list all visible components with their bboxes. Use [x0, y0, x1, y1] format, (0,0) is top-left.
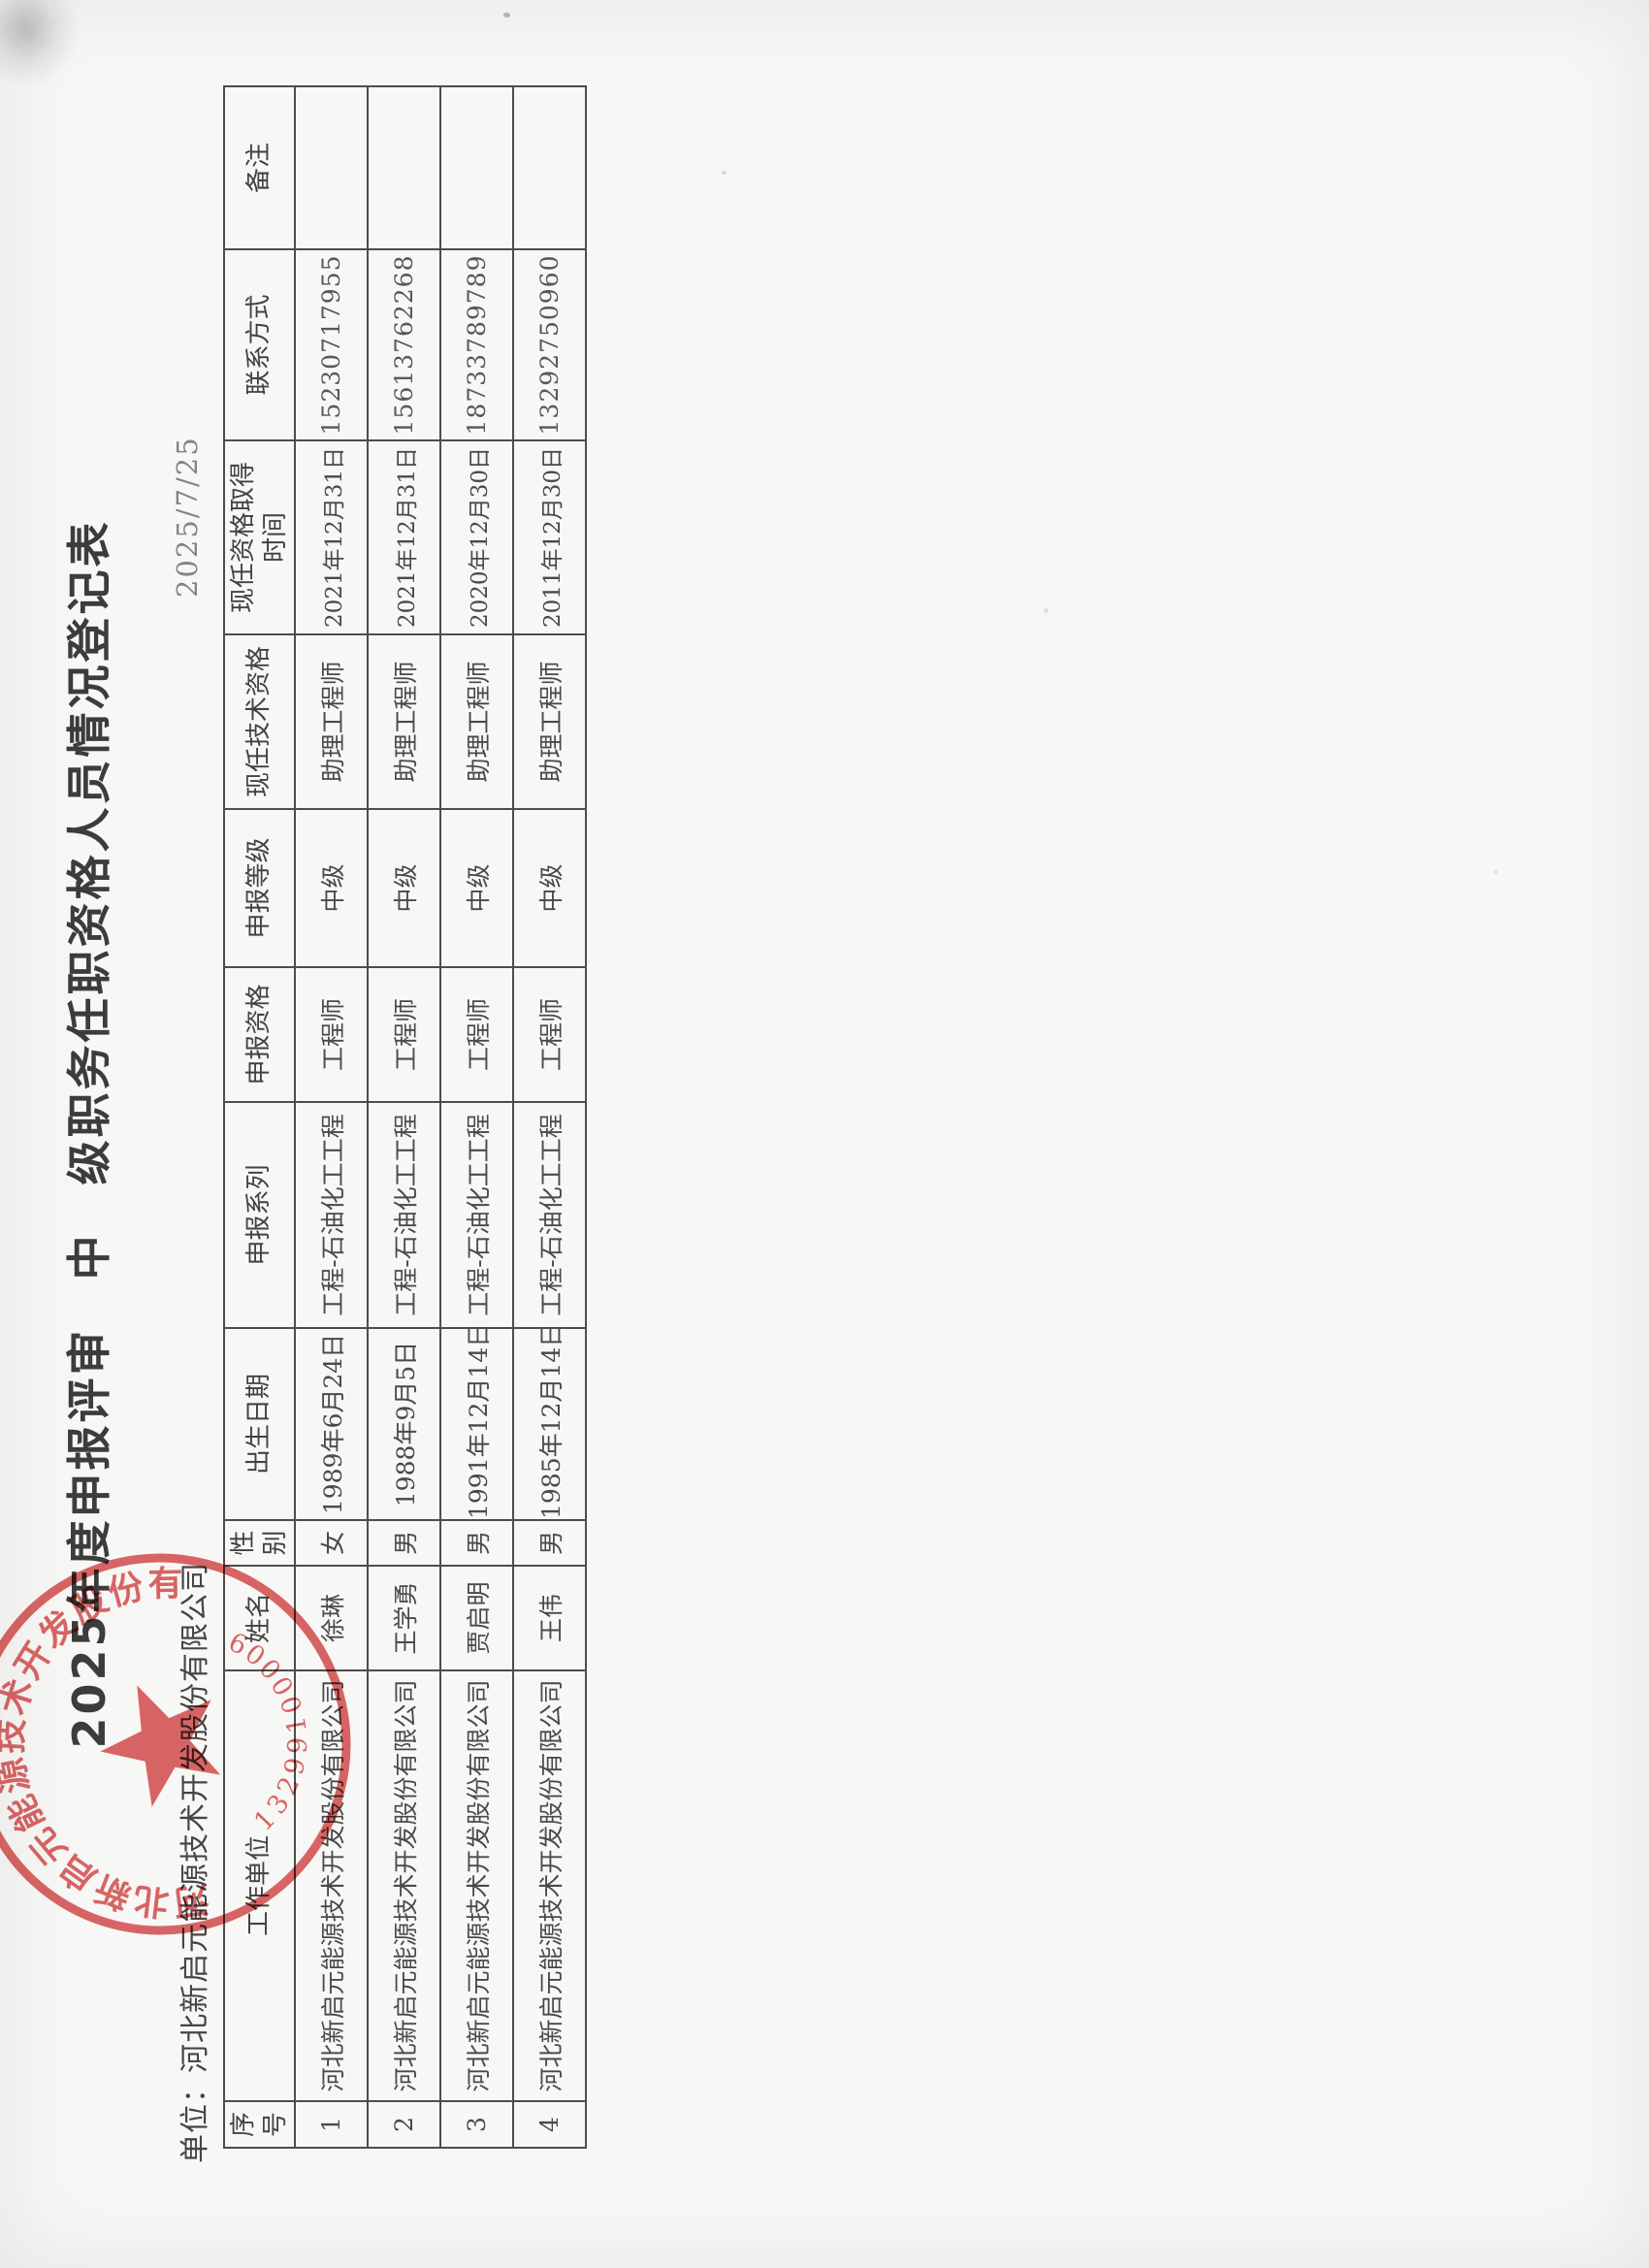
scan-speck	[722, 171, 727, 175]
table-cell: 中级	[368, 809, 440, 967]
scan-speck	[1044, 608, 1049, 613]
table-cell	[440, 86, 513, 249]
table-row: 4河北新启元能源技术开发股份有限公司王伟男1985年12月14日工程-石油化工工…	[513, 86, 586, 2148]
header-cell: 申报系列	[224, 1102, 295, 1328]
table-cell: 工程师	[440, 967, 513, 1102]
seal-number-arc: 13299100009	[216, 1614, 326, 1840]
table-cell: 工程-石油化工工程	[440, 1102, 513, 1328]
table-cell: 中级	[440, 809, 513, 967]
table-cell: 工程师	[295, 967, 368, 1102]
table-cell: 贾启明	[440, 1566, 513, 1670]
table-cell: 工程师	[368, 967, 440, 1102]
table-cell: 工程师	[513, 967, 586, 1102]
table-cell	[368, 86, 440, 249]
header-cell: 申报等级	[224, 809, 295, 967]
table-cell: 1	[295, 2101, 368, 2148]
company-seal-stamp: 河北新启元能源技术开发股份有限公司 13299100009	[0, 1517, 387, 1971]
table-cell: 男	[368, 1520, 440, 1566]
table-cell: 1989年6月24日	[295, 1328, 368, 1520]
table-cell: 工程-石油化工工程	[368, 1102, 440, 1328]
table-cell: 助理工程师	[368, 634, 440, 809]
table-cell: 1985年12月14日	[513, 1328, 586, 1520]
table-cell: 王学勇	[368, 1566, 440, 1670]
table-cell: 2020年12月30日	[440, 440, 513, 634]
header-cell: 现任资格取得 时间	[224, 440, 295, 634]
table-cell: 中级	[513, 809, 586, 967]
table-cell: 工程-石油化工工程	[295, 1102, 368, 1328]
table-cell: 工程-石油化工工程	[513, 1102, 586, 1328]
table-cell: 中级	[295, 809, 368, 967]
table-cell: 王伟	[513, 1566, 586, 1670]
table-cell: 13292750960	[513, 249, 586, 440]
table-row: 2河北新启元能源技术开发股份有限公司王学勇男1988年9月5日工程-石油化工工程…	[368, 86, 440, 2148]
table-cell: 2021年12月31日	[368, 440, 440, 634]
table-cell: 2021年12月31日	[295, 440, 368, 634]
table-cell: 助理工程师	[513, 634, 586, 809]
seal-star-icon	[93, 1676, 223, 1812]
table-cell: 助理工程师	[440, 634, 513, 809]
table-row: 3河北新启元能源技术开发股份有限公司贾启明男1991年12月14日工程-石油化工…	[440, 86, 513, 2148]
table-cell: 4	[513, 2101, 586, 2148]
table-cell: 河北新启元能源技术开发股份有限公司	[513, 1670, 586, 2101]
print-date: 2025/7/25	[171, 436, 204, 598]
table-cell: 河北新启元能源技术开发股份有限公司	[440, 1670, 513, 2101]
table-cell	[295, 86, 368, 249]
table-cell: 15613762268	[368, 249, 440, 440]
scan-speck	[1494, 870, 1498, 874]
header-cell: 序 号	[224, 2101, 295, 2148]
header-cell: 联系方式	[224, 249, 295, 440]
scan-speck	[503, 13, 510, 17]
header-cell: 备注	[224, 86, 295, 249]
table-cell: 3	[440, 2101, 513, 2148]
table-cell: 男	[513, 1520, 586, 1566]
table-cell: 男	[440, 1520, 513, 1566]
header-cell: 申报资格	[224, 967, 295, 1102]
table-cell: 18733789789	[440, 249, 513, 440]
table-cell: 2	[368, 2101, 440, 2148]
table-cell: 15230717955	[295, 249, 368, 440]
table-cell: 2011年12月30日	[513, 440, 586, 634]
table-cell: 助理工程师	[295, 634, 368, 809]
table-cell: 1988年9月5日	[368, 1328, 440, 1520]
scanned-document: 2025年度申报评审 中 级职务任职资格人员情况登记表 单位：河北新启元能源技术…	[0, 0, 1649, 2268]
header-cell: 出生日期	[224, 1328, 295, 1520]
table-cell: 1991年12月14日	[440, 1328, 513, 1520]
table-cell	[513, 86, 586, 249]
header-cell: 现任技术资格	[224, 634, 295, 809]
